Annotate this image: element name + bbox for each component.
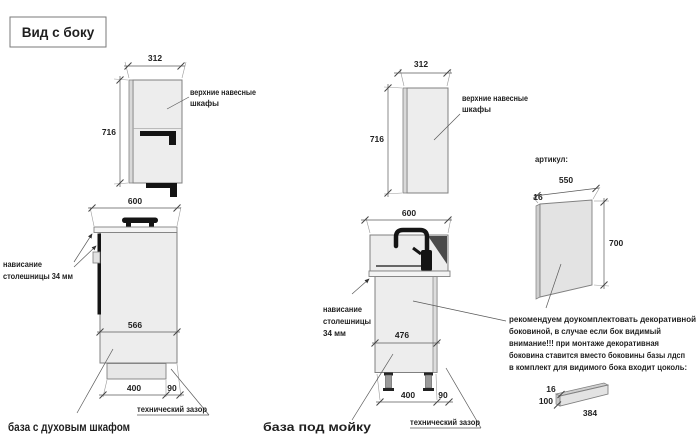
door-handle-profile: [146, 183, 177, 197]
title: Вид с боку: [10, 17, 106, 47]
dim-gap-base-oven: 90: [167, 383, 177, 393]
wall-cabinet-side-panel: [403, 88, 407, 193]
dim-depth-base-sink: 476: [395, 330, 409, 340]
countertop: [94, 227, 177, 233]
dim-plinth-panel-length: 384: [583, 408, 597, 418]
oven-handle: [122, 218, 158, 224]
countertop-overhang-block: [93, 252, 100, 263]
faucet-body: [421, 250, 432, 271]
dim-panel-thickness: 16: [533, 192, 543, 202]
countertop: [369, 271, 450, 277]
overhang-label-line3: 34 мм: [323, 329, 346, 338]
note-warning-line-1: внимание!!! при монтаже декоративная: [509, 339, 659, 348]
dim-height-left-upper: 716: [102, 127, 116, 137]
base-sink-drawing: 600 нависание столешницы 34 мм 476: [263, 208, 506, 434]
overhang-label-line2: столешницы: [323, 317, 371, 326]
upper-cabinet-mid-drawing: 312 716 верхние навесные шкафы: [370, 59, 529, 197]
panel-face: [540, 200, 592, 297]
sink-base-carcass: [375, 277, 437, 373]
dim-plinth-base-oven: 400: [127, 383, 141, 393]
overhang-label-line2: столешницы 34 мм: [3, 272, 73, 281]
dim-gap-base-sink: 90: [438, 390, 448, 400]
base-oven-drawing: 600 нависание столешницы 34 мм 566 400 9…: [3, 196, 209, 434]
plinth: [107, 364, 166, 380]
note-line-2: боковиной, в случае если бок видимый: [509, 327, 661, 336]
overhang-label-line1: нависание: [323, 305, 363, 314]
cabinet-leg: [383, 373, 394, 392]
oven-base-carcass: [100, 233, 177, 364]
note-line-1: рекомендуем доукомплектовать декоративно…: [509, 315, 696, 324]
dim-panel-height: 700: [609, 238, 623, 248]
wall-cabinet-label-line2: шкафы: [190, 99, 219, 108]
dim-width-mid-upper: 312: [414, 59, 428, 69]
dim-plinth-base-sink: 400: [401, 390, 415, 400]
tech-gap-label: технический зазор: [410, 418, 480, 427]
side-view-drawing: Вид с боку 312 716 верхние навесные шкаф…: [0, 0, 700, 438]
dim-panel-width: 550: [559, 175, 573, 185]
dim-plinth-panel-thickness: 16: [546, 384, 556, 394]
carcass-back-panel: [433, 277, 437, 373]
dim-width-base-oven: 600: [128, 196, 142, 206]
note-block: рекомендуем доукомплектовать декоративно…: [509, 315, 696, 372]
upper-cabinet-left-drawing: 312 716 верхние навесные шкафы: [102, 53, 257, 197]
caption-base-oven: база с духовым шкафом: [8, 422, 130, 434]
tech-gap-label: технический зазор: [137, 405, 207, 414]
dim-width-base-sink: 600: [402, 208, 416, 218]
wall-cabinet-label-line2: шкафы: [462, 105, 491, 114]
dim-depth-base-oven: 566: [128, 320, 142, 330]
note-line-3: в комплект для видимого бока входит цоко…: [509, 363, 687, 372]
cabinet-leg: [423, 373, 434, 392]
wall-cabinet-label-line1: верхние навесные: [462, 94, 528, 103]
oven-door-front: [98, 234, 102, 315]
wall-cabinet-label-line1: верхние навесные: [190, 88, 256, 97]
dim-height-mid-upper: 716: [370, 134, 384, 144]
page-title: Вид с боку: [22, 25, 95, 40]
side-panel-drawing: артикул: 550 16 700: [533, 154, 623, 308]
dim-width-left-upper: 312: [148, 53, 162, 63]
technical-drawing-page: Вид с боку 312 716 верхние навесные шкаф…: [0, 0, 700, 438]
plinth-panel-drawing: 16 100 384: [539, 383, 608, 418]
dim-plinth-panel-height: 100: [539, 396, 553, 406]
overhang-label-line1: нависание: [3, 260, 43, 269]
caption-base-sink: база под мойку: [263, 422, 372, 434]
wall-cabinet-side-panel: [129, 80, 133, 183]
note-warning-line-2: боковина ставится вместо боковины базы л…: [509, 351, 685, 360]
wall-cabinet-body: [407, 88, 448, 193]
panel-edge: [536, 204, 540, 299]
article-label: артикул:: [535, 154, 568, 164]
